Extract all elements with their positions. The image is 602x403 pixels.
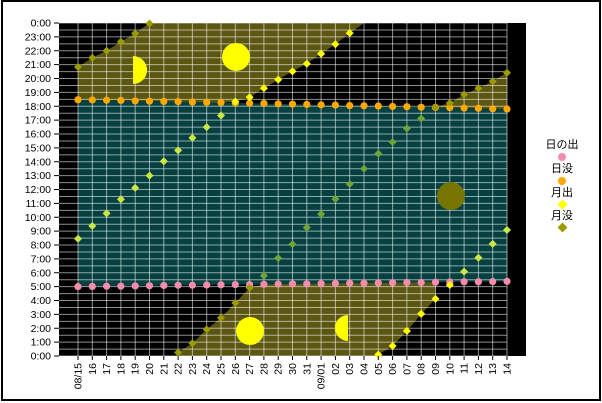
legend-item-moonrise: 月出 (551, 187, 573, 209)
svg-text:25: 25 (216, 363, 228, 375)
svg-text:5:00: 5:00 (31, 281, 52, 293)
svg-text:22:00: 22:00 (25, 45, 51, 57)
plot-area: 0:0023:0022:0021:0020:0019:0018:0017:001… (0, 0, 602, 403)
svg-text:11: 11 (459, 363, 471, 374)
svg-text:09: 09 (430, 363, 442, 375)
svg-text:31: 31 (301, 363, 313, 375)
svg-text:23:00: 23:00 (25, 31, 51, 43)
svg-text:20:00: 20:00 (25, 73, 51, 85)
svg-text:27: 27 (244, 363, 256, 375)
svg-text:10:00: 10:00 (25, 212, 51, 224)
svg-text:11:00: 11:00 (26, 198, 52, 210)
svg-text:22: 22 (173, 363, 185, 375)
svg-text:7:00: 7:00 (31, 253, 52, 265)
svg-text:05: 05 (373, 363, 385, 375)
svg-text:17: 17 (101, 363, 113, 375)
moon-phase-new-icon (437, 182, 465, 210)
svg-text:16: 16 (87, 363, 99, 375)
svg-text:07: 07 (401, 363, 413, 375)
svg-text:09/01: 09/01 (316, 363, 328, 389)
svg-text:19:00: 19:00 (25, 87, 51, 99)
svg-text:23: 23 (187, 363, 199, 375)
svg-text:4:00: 4:00 (31, 295, 52, 307)
svg-text:15:00: 15:00 (25, 142, 51, 154)
svg-text:21:00: 21:00 (25, 59, 51, 71)
svg-text:03: 03 (344, 363, 356, 375)
legend-label-moonrise: 月出 (551, 187, 573, 200)
svg-text:08: 08 (416, 363, 428, 375)
svg-text:14:00: 14:00 (25, 156, 51, 168)
svg-text:17:00: 17:00 (25, 115, 51, 127)
legend: 日の出 日没 月出 月没 (532, 139, 592, 233)
y-axis-labels: 0:0023:0022:0021:0020:0019:0018:0017:001… (25, 18, 51, 363)
svg-text:18: 18 (115, 363, 127, 375)
svg-text:9:00: 9:00 (31, 226, 52, 238)
svg-text:13: 13 (487, 363, 499, 375)
svg-text:04: 04 (359, 363, 371, 375)
svg-text:19: 19 (130, 363, 142, 375)
moonset-marker-icon (557, 223, 567, 233)
svg-text:2:00: 2:00 (31, 323, 52, 335)
svg-text:08/15: 08/15 (73, 363, 85, 389)
svg-text:24: 24 (201, 363, 213, 375)
svg-text:16:00: 16:00 (25, 129, 51, 141)
moonrise-marker-icon (557, 200, 567, 210)
svg-text:12:00: 12:00 (25, 184, 51, 196)
legend-label-sunset: 日没 (551, 163, 573, 176)
svg-text:1:00: 1:00 (31, 337, 52, 349)
svg-text:18:00: 18:00 (25, 101, 51, 113)
svg-text:0:00: 0:00 (31, 351, 52, 363)
svg-text:21: 21 (158, 363, 170, 375)
svg-text:20: 20 (144, 363, 156, 375)
legend-item-moonset: 月没 (551, 210, 573, 232)
svg-text:29: 29 (273, 363, 285, 375)
legend-label-moonset: 月没 (551, 210, 573, 223)
svg-text:0:00: 0:00 (31, 18, 52, 30)
svg-text:12: 12 (473, 363, 485, 375)
svg-text:02: 02 (330, 363, 342, 375)
moon-phase-full-icon (222, 43, 250, 71)
legend-item-sunset: 日没 (551, 163, 573, 186)
x-axis-labels: 08/151617181920212223242526272829303109/… (73, 363, 514, 389)
svg-text:06: 06 (387, 363, 399, 375)
sunset-marker-icon (558, 177, 566, 185)
chart-canvas: 0:0023:0022:0021:0020:0019:0018:0017:001… (0, 0, 602, 403)
svg-text:3:00: 3:00 (31, 309, 52, 321)
legend-label-sunrise: 日の出 (546, 139, 579, 152)
svg-text:28: 28 (258, 363, 270, 375)
moon-phase-full-icon (236, 317, 264, 345)
svg-text:6:00: 6:00 (31, 267, 52, 279)
svg-text:30: 30 (287, 363, 299, 375)
svg-text:13:00: 13:00 (25, 170, 51, 182)
legend-item-sunrise: 日の出 (546, 139, 579, 162)
svg-text:10: 10 (444, 363, 456, 375)
svg-text:14: 14 (502, 363, 514, 375)
svg-text:8:00: 8:00 (31, 240, 52, 252)
svg-text:26: 26 (230, 363, 242, 375)
sunrise-marker-icon (558, 153, 566, 161)
